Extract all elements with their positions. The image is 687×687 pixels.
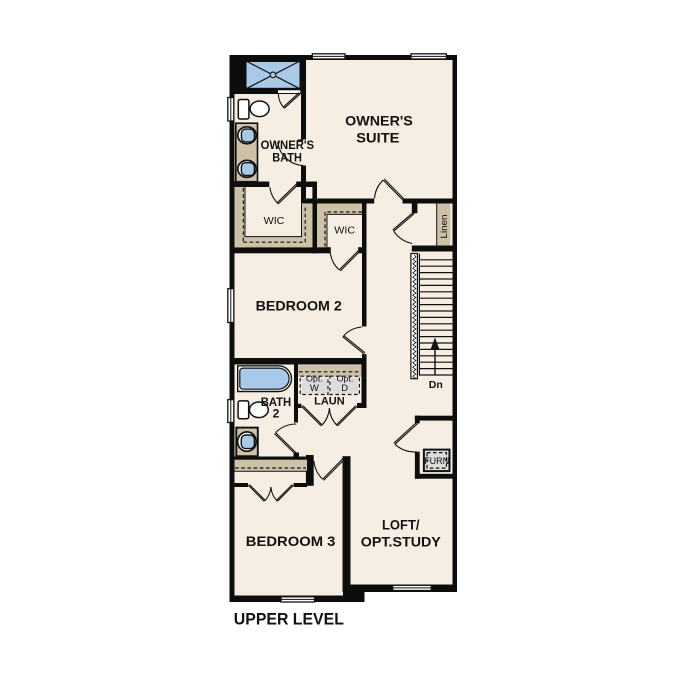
svg-text:Linen: Linen (439, 215, 450, 239)
svg-text:SUITE: SUITE (356, 131, 399, 146)
svg-text:OPT.STUDY: OPT.STUDY (361, 534, 441, 549)
svg-text:LAUN: LAUN (314, 396, 345, 408)
svg-text:BEDROOM 3: BEDROOM 3 (246, 534, 336, 549)
svg-text:BEDROOM 2: BEDROOM 2 (256, 298, 343, 313)
svg-text:WIC: WIC (334, 225, 355, 237)
svg-text:D: D (341, 383, 348, 394)
svg-text:WIC: WIC (264, 215, 285, 227)
svg-text:UPPER LEVEL: UPPER LEVEL (234, 610, 344, 629)
svg-text:Dn: Dn (429, 379, 443, 391)
svg-text:2: 2 (273, 407, 280, 421)
svg-text:FURN: FURN (424, 456, 449, 467)
svg-text:W: W (310, 383, 319, 394)
svg-text:OWNER'S: OWNER'S (345, 113, 413, 128)
svg-text:BATH: BATH (272, 150, 302, 164)
svg-text:LOFT/: LOFT/ (382, 518, 420, 533)
